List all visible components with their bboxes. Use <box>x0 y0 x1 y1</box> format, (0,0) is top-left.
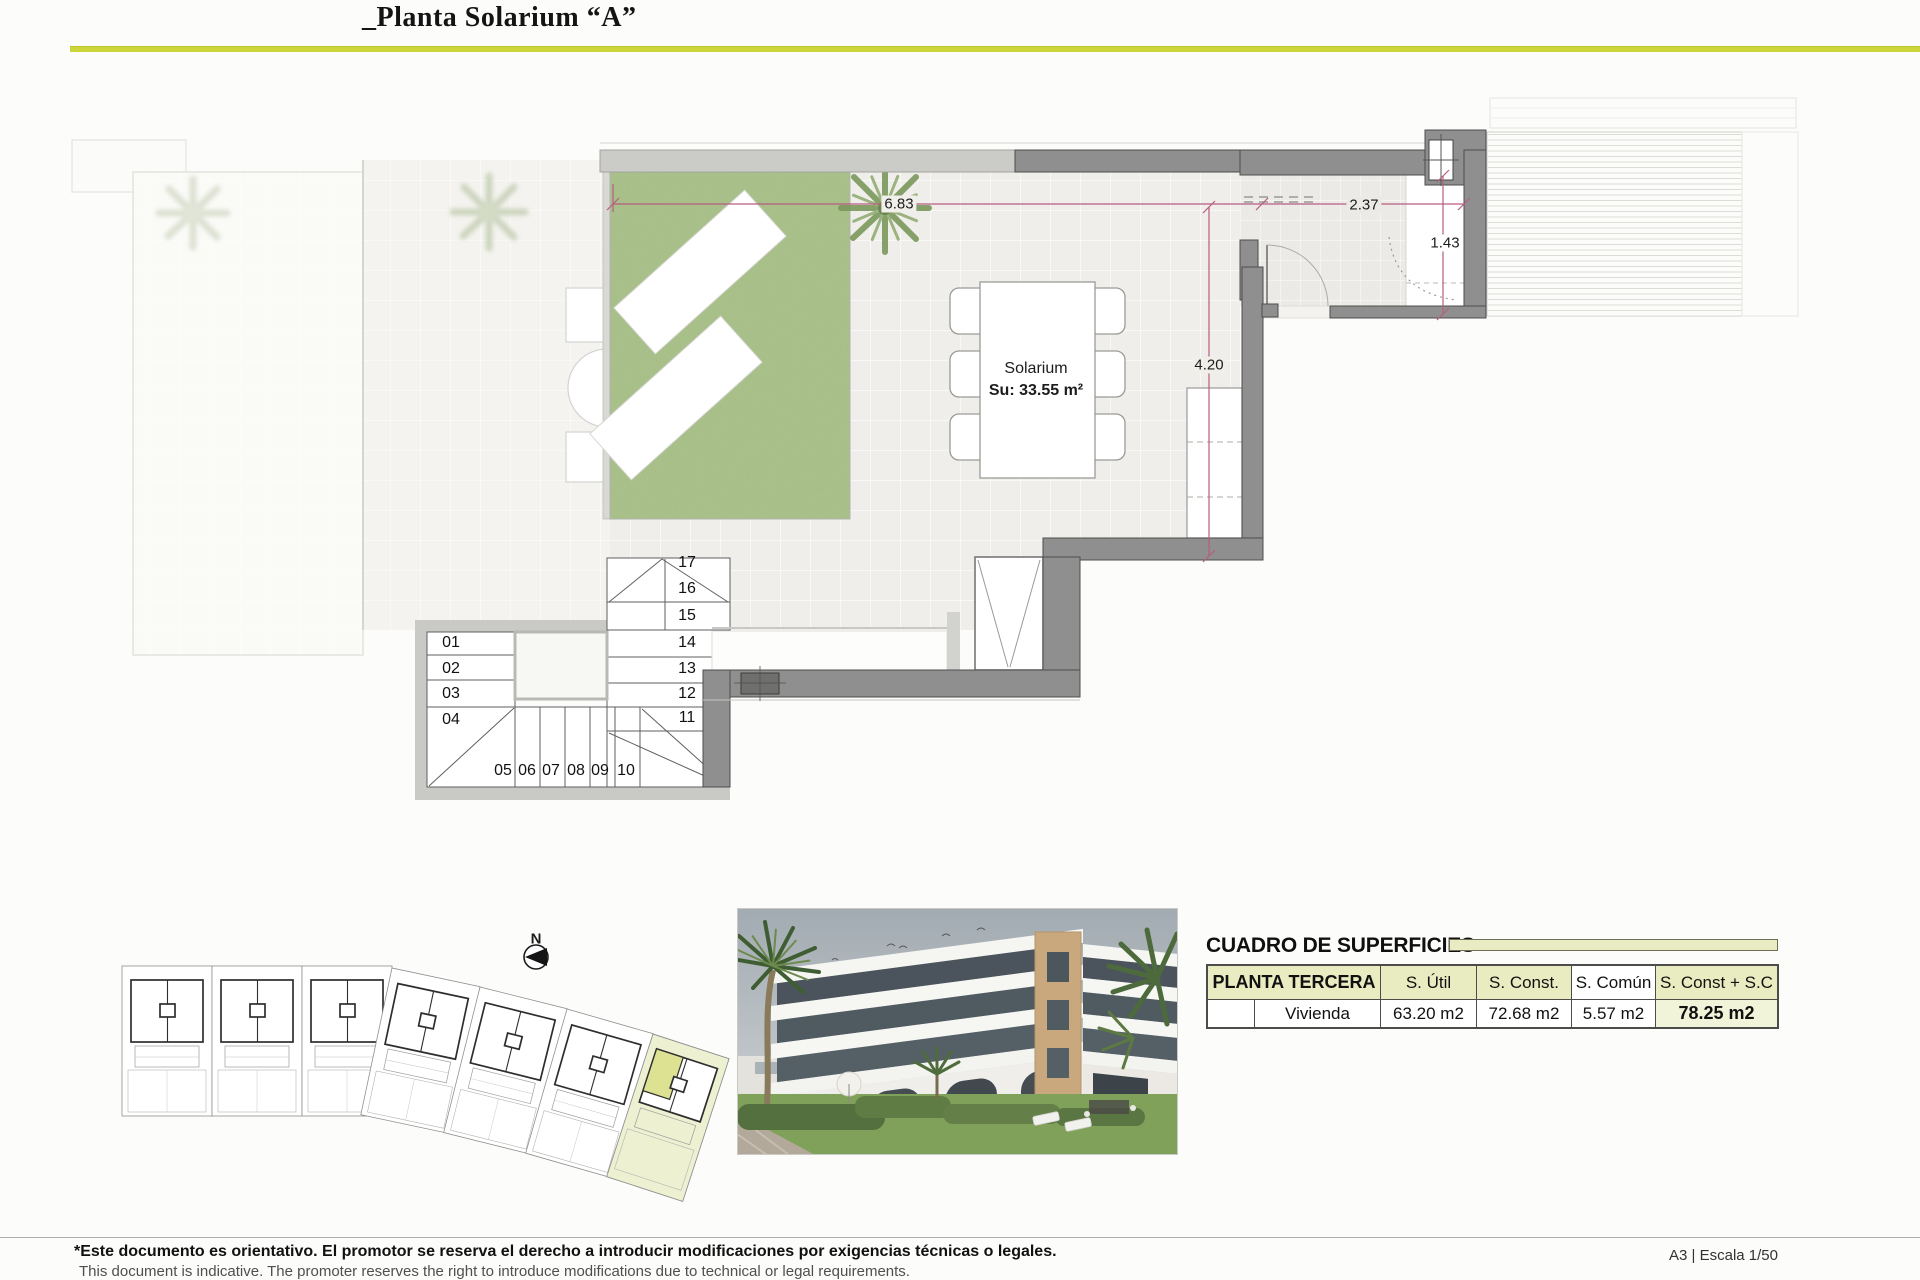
tree-faint-2 <box>453 176 525 248</box>
row-spacer <box>1208 1000 1254 1027</box>
col-floor: PLANTA TERCERA <box>1208 966 1380 999</box>
north-label: N <box>531 931 542 948</box>
stair-step-06: 06 <box>518 762 536 780</box>
tree-faint-1 <box>159 179 227 247</box>
site-plan <box>122 966 729 1201</box>
stair-step-12: 12 <box>678 685 696 703</box>
surfaces-title-bar <box>1449 939 1778 951</box>
accent-divider <box>70 46 1920 52</box>
stair-step-02: 02 <box>442 660 460 678</box>
val-util: 63.20 m2 <box>1381 1000 1476 1027</box>
dining-set <box>950 282 1125 478</box>
wood-deck <box>1487 98 1798 316</box>
surfaces-table: PLANTA TERCERA S. Útil S. Const. S. Comú… <box>1206 964 1779 1029</box>
room-area-label: Su: 33.55 m² <box>989 382 1083 400</box>
room-label: Solarium <box>1004 360 1067 378</box>
col-util: S. Útil <box>1381 966 1476 999</box>
footer-divider <box>0 1237 1920 1238</box>
disclaimer-en: This document is indicative. The promote… <box>79 1263 910 1280</box>
building-photo <box>727 908 1178 1155</box>
neighbor-terrace <box>72 140 363 655</box>
page-title: _Planta Solarium “A” <box>362 2 636 34</box>
stair-step-14: 14 <box>678 634 696 652</box>
stairwell-shaft <box>975 557 1043 670</box>
stair-step-08: 08 <box>567 762 585 780</box>
north-compass-icon <box>524 945 548 969</box>
stair-step-13: 13 <box>678 660 696 678</box>
stair-step-17: 17 <box>678 554 696 572</box>
col-const: S. Const. <box>1477 966 1571 999</box>
stair-step-01: 01 <box>442 634 460 652</box>
strip-planters <box>566 288 607 482</box>
stair-step-04: 04 <box>442 711 460 729</box>
row-label: Vivienda <box>1255 1000 1380 1027</box>
sheet-scale-info: A3 | Escala 1/50 <box>1669 1247 1778 1264</box>
dimension-garden-width: 6.83 <box>881 196 916 213</box>
dimension-room-depth: 1.43 <box>1427 235 1462 252</box>
stair-step-11: 11 <box>679 709 696 727</box>
stair-step-10: 10 <box>617 762 635 780</box>
plan-sheet: _Planta Solarium “A” 6.83 2.37 1.43 4.20… <box>0 0 1920 1280</box>
dimension-room-width: 2.37 <box>1346 197 1381 214</box>
val-total: 78.25 m2 <box>1656 1000 1777 1027</box>
dimension-terrace-depth: 4.20 <box>1191 357 1226 374</box>
surfaces-title: CUADRO DE SUPERFICIES <box>1206 934 1475 958</box>
col-total: S. Const + S.C <box>1656 966 1777 999</box>
val-comun: 5.57 m2 <box>1572 1000 1655 1027</box>
stair-step-15: 15 <box>678 607 696 625</box>
floor-plan-canvas <box>0 0 1920 1280</box>
stair-step-07: 07 <box>542 762 560 780</box>
installation-box <box>1187 388 1242 538</box>
stair-step-05: 05 <box>494 762 512 780</box>
stair-step-09: 09 <box>591 762 609 780</box>
stair-step-03: 03 <box>442 685 460 703</box>
dining-table <box>980 282 1095 478</box>
val-const: 72.68 m2 <box>1477 1000 1571 1027</box>
stair-step-16: 16 <box>678 580 696 598</box>
garden <box>590 162 852 519</box>
col-comun: S. Común <box>1572 966 1655 999</box>
disclaimer-es: *Este documento es orientativo. El promo… <box>74 1243 1057 1261</box>
